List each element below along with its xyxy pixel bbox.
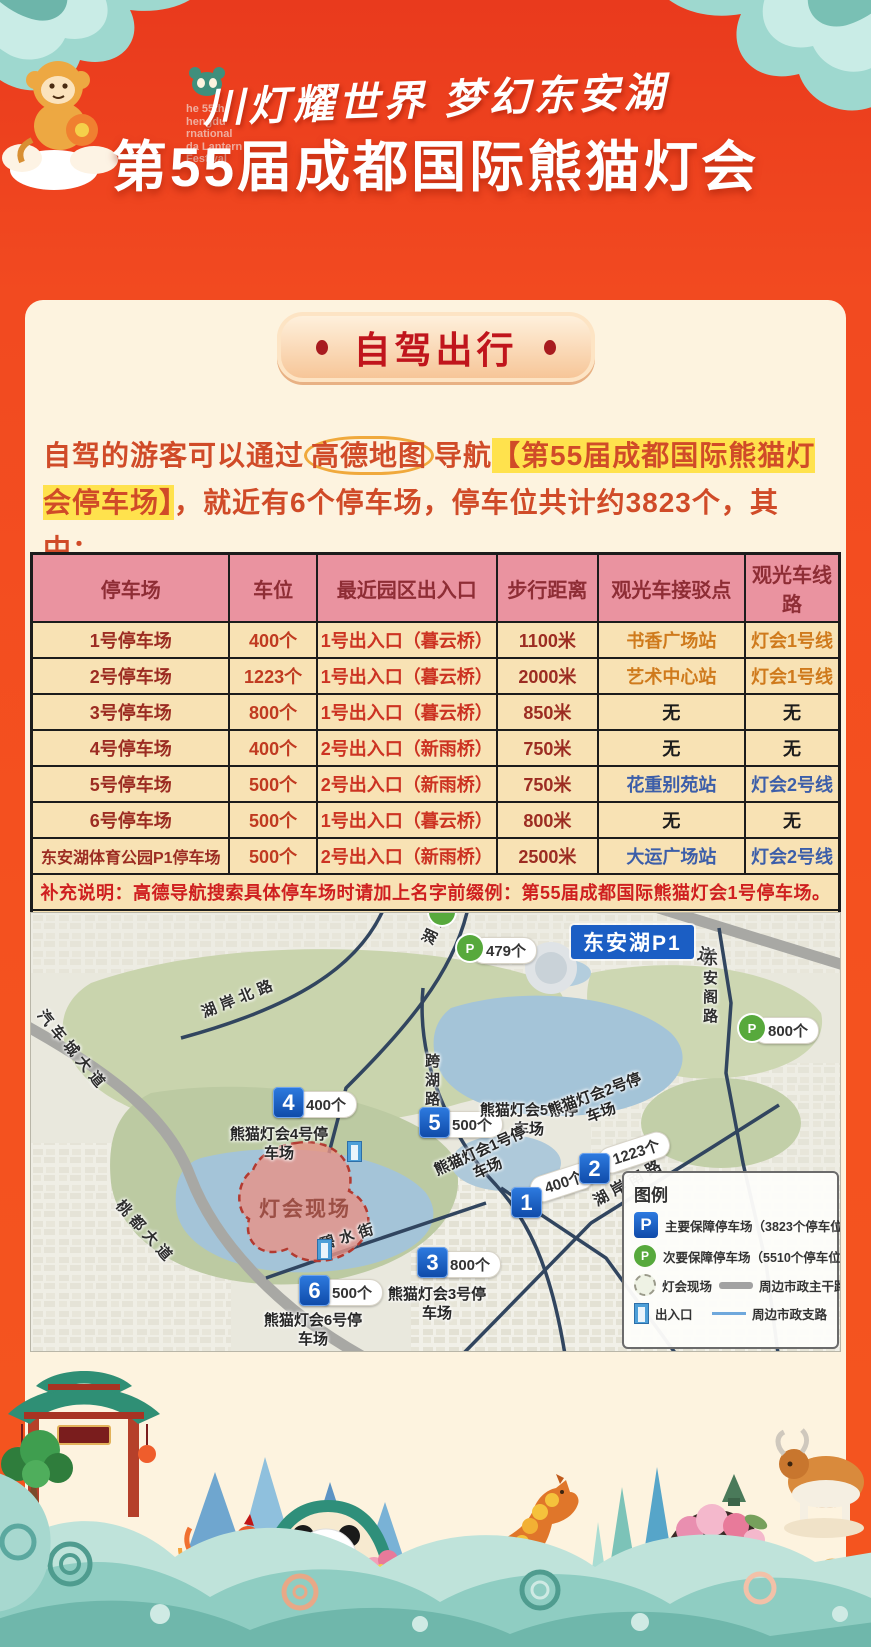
lot-exit: 1号出入口（暮云桥） xyxy=(317,658,497,694)
table-row: 3号停车场 800个 1号出入口（暮云桥） 850米 无 无 xyxy=(32,694,840,730)
parking-marker-5: 5 xyxy=(419,1107,450,1138)
lot-line: 灯会2号线 xyxy=(745,838,840,874)
lot-distance: 750米 xyxy=(497,766,598,802)
table-row: 5号停车场 500个 2号出入口（新雨桥） 750米 花重别苑站 灯会2号线 xyxy=(32,766,840,802)
lot-spots: 400个 xyxy=(229,622,316,658)
legend-main-road-label: 周边市政主干路 xyxy=(759,1276,841,1295)
parking-marker-3: 3 xyxy=(417,1247,448,1278)
lot-exit: 1号出入口（暮云桥） xyxy=(317,694,497,730)
footer-illustration xyxy=(0,1352,871,1647)
lot-distance: 750米 xyxy=(497,730,598,766)
lot-name: 6号停车场 xyxy=(32,802,230,838)
lot-station: 花重别苑站 xyxy=(598,766,745,802)
lot-spots: 500个 xyxy=(229,766,316,802)
legend-side-road-label: 周边市政支路 xyxy=(752,1304,827,1323)
legend-title: 图例 xyxy=(634,1181,827,1206)
entrance-icon xyxy=(347,1141,362,1162)
lot-exit: 2号出入口（新雨桥） xyxy=(317,766,497,802)
secondary-parking-icon: P xyxy=(634,1245,656,1267)
lot-distance: 2000米 xyxy=(497,658,598,694)
entrance-legend-icon xyxy=(634,1303,649,1324)
lot-exit: 1号出入口（暮云桥） xyxy=(317,622,497,658)
badge-dot-left xyxy=(316,340,328,355)
col-header-distance: 步行距离 xyxy=(497,554,598,623)
badge-dot-right xyxy=(544,340,556,355)
lot-name: 2号停车场 xyxy=(32,658,230,694)
lot-line: 无 xyxy=(745,802,840,838)
legend-primary-label: 主要保障停车场（3823个停车位） xyxy=(665,1216,841,1235)
road-label: 东安阁路 xyxy=(699,951,720,1027)
intro-mid: 导航 xyxy=(434,440,492,471)
lot-spots: 1223个 xyxy=(229,658,316,694)
parking-marker-6: 6 xyxy=(299,1275,330,1306)
lantern-festival-poster: he 55th hengdu rnational da Lantern Fest… xyxy=(0,0,871,1647)
table-row: 东安湖体育公园P1停车场 500个 2号出入口（新雨桥） 2500米 大运广场站… xyxy=(32,838,840,874)
table-row: 4号停车场 400个 2号出入口（新雨桥） 750米 无 无 xyxy=(32,730,840,766)
lot-station: 艺术中心站 xyxy=(598,658,745,694)
yak xyxy=(778,1430,864,1538)
side-road-icon xyxy=(712,1312,746,1315)
parking-lot-label: 熊猫灯会4号停车场 xyxy=(229,1125,329,1163)
lot-line: 灯会1号线 xyxy=(745,658,840,694)
col-header-lot: 停车场 xyxy=(32,554,230,623)
lot-station: 大运广场站 xyxy=(598,838,745,874)
lot-spots: 500个 xyxy=(229,838,316,874)
lot-spots: 800个 xyxy=(229,694,316,730)
entrance-icon xyxy=(317,1239,332,1260)
intro-pre: 自驾的游客可以通过 xyxy=(43,440,304,471)
legend-site-label: 灯会现场 xyxy=(662,1276,712,1295)
lantern-site-icon xyxy=(634,1274,656,1296)
table-row: 6号停车场 500个 1号出入口（暮云桥） 800米 无 无 xyxy=(32,802,840,838)
table-row: 1号停车场 400个 1号出入口（暮云桥） 1100米 书香广场站 灯会1号线 xyxy=(32,622,840,658)
lot-name: 3号停车场 xyxy=(32,694,230,730)
col-header-spots: 车位 xyxy=(229,554,316,623)
map-legend: 图例 P 主要保障停车场（3823个停车位） P 次要保障停车场（5510个停车… xyxy=(622,1171,839,1349)
road-label: 跨湖路 xyxy=(421,1053,442,1110)
lot-station: 无 xyxy=(598,694,745,730)
secondary-parking-marker: P xyxy=(457,935,483,961)
parking-marker-2: 2 xyxy=(579,1153,610,1184)
parking-marker-4: 4 xyxy=(273,1087,304,1118)
lot-station: 无 xyxy=(598,802,745,838)
parking-lot-label: 熊猫灯会6号停车场 xyxy=(263,1311,363,1349)
col-header-line: 观光车线路 xyxy=(745,554,840,623)
main-road-icon xyxy=(719,1282,753,1289)
area-label-donganhu-p1: 东安湖P1 xyxy=(571,925,694,959)
col-header-station: 观光车接驳点 xyxy=(598,554,745,623)
intro-circled-gaode: 高德地图 xyxy=(304,436,434,475)
lot-station: 无 xyxy=(598,730,745,766)
secondary-parking-marker: P xyxy=(739,1015,765,1041)
lot-exit: 2号出入口（新雨桥） xyxy=(317,730,497,766)
lot-name: 1号停车场 xyxy=(32,622,230,658)
lot-distance: 2500米 xyxy=(497,838,598,874)
table-note-row: 补充说明：高德导航搜索具体停车场时请加上名字前缀例：第55届成都国际熊猫灯会1号… xyxy=(32,874,840,910)
lantern-site-label: 灯会现场 xyxy=(259,1193,351,1223)
lot-name: 4号停车场 xyxy=(32,730,230,766)
section-badge: 自驾出行 xyxy=(277,312,595,382)
lot-exit: 1号出入口（暮云桥） xyxy=(317,802,497,838)
lot-line: 灯会2号线 xyxy=(745,766,840,802)
lot-distance: 1100米 xyxy=(497,622,598,658)
parking-marker-1: 1 xyxy=(511,1187,542,1218)
lot-line: 无 xyxy=(745,730,840,766)
lot-spots: 500个 xyxy=(229,802,316,838)
lot-distance: 850米 xyxy=(497,694,598,730)
col-header-exit: 最近园区出入口 xyxy=(317,554,497,623)
section-badge-label: 自驾出行 xyxy=(354,320,518,374)
legend-secondary-label: 次要保障停车场（5510个停车位） xyxy=(663,1247,841,1266)
lot-spots: 400个 xyxy=(229,730,316,766)
parking-table: 停车场 车位 最近园区出入口 步行距离 观光车接驳点 观光车线路 1号停车场 4… xyxy=(30,552,841,974)
lot-name: 5号停车场 xyxy=(32,766,230,802)
table-note-supplement: 补充说明：高德导航搜索具体停车场时请加上名字前缀例：第55届成都国际熊猫灯会1号… xyxy=(32,874,840,910)
lot-exit: 2号出入口（新雨桥） xyxy=(317,838,497,874)
table-header-row: 停车场 车位 最近园区出入口 步行距离 观光车接驳点 观光车线路 xyxy=(32,554,840,623)
lot-line: 灯会1号线 xyxy=(745,622,840,658)
table-row: 2号停车场 1223个 1号出入口（暮云桥） 2000米 艺术中心站 灯会1号线 xyxy=(32,658,840,694)
lot-name: 东安湖体育公园P1停车场 xyxy=(32,838,230,874)
lot-line: 无 xyxy=(745,694,840,730)
legend-entrance-label: 出入口 xyxy=(655,1304,693,1323)
festival-title: 第55届成都国际熊猫灯会 xyxy=(0,122,871,202)
lot-station: 书香广场站 xyxy=(598,622,745,658)
parking-map: 汽车城大道 桃都大道 大道 湖岸北路 湖岸北路 跨湖路 湖岸南路 碧水街 东安阁… xyxy=(30,912,841,1352)
header: he 55th hengdu rnational da Lantern Fest… xyxy=(0,0,871,300)
parking-lot-label: 熊猫灯会3号停车场 xyxy=(387,1285,487,1323)
primary-parking-icon: P xyxy=(634,1212,658,1238)
lot-distance: 800米 xyxy=(497,802,598,838)
